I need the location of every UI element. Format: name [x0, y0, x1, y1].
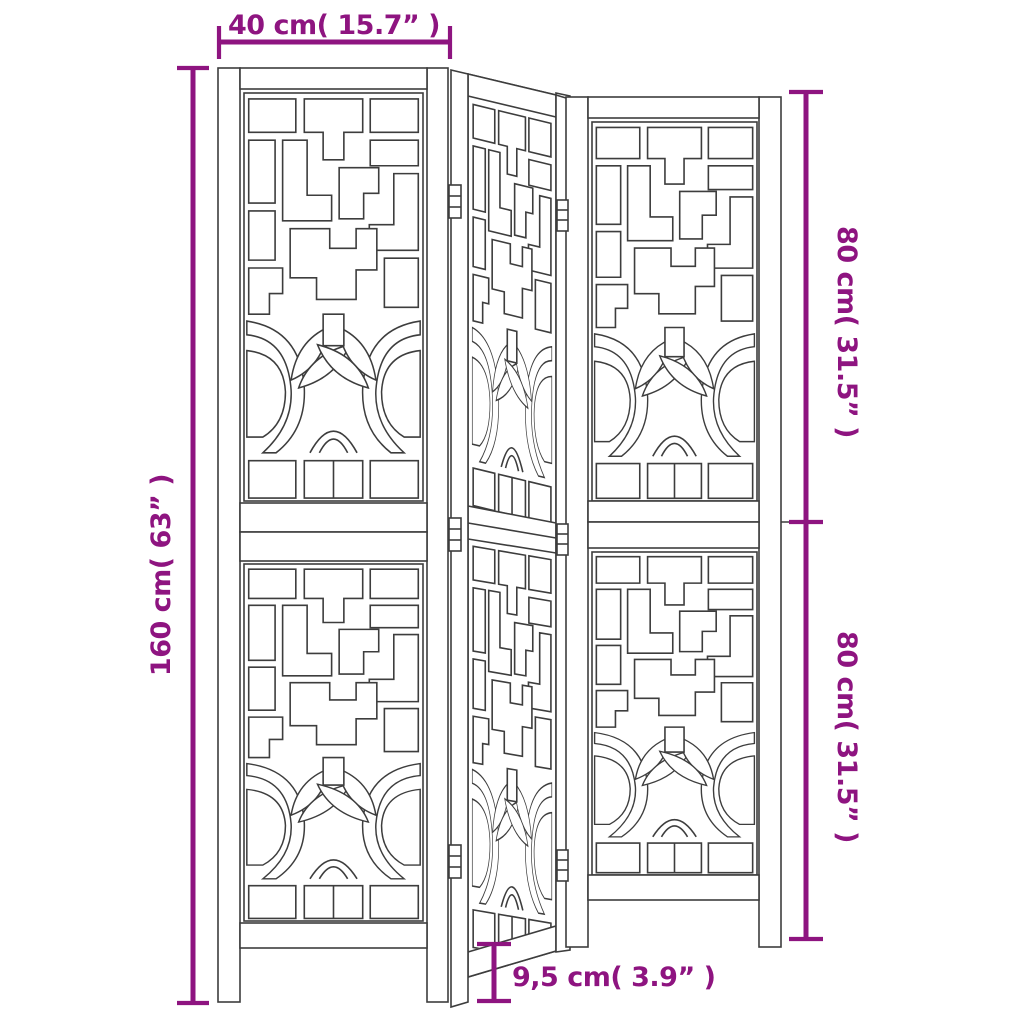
panel-3-top-rail [588, 97, 759, 118]
dimension-label-panel-width: 40 cm( 15.7” ) [228, 10, 440, 41]
panel-1-left-stile [218, 68, 240, 1002]
panel-3-mid-rail-upper [588, 501, 759, 522]
dimension-label-lower-section: 80 cm( 31.5” ) [831, 631, 862, 843]
hinge-icon [449, 845, 461, 878]
dimension-label-upper-section: 80 cm( 31.5” ) [831, 226, 862, 438]
panel-1 [218, 68, 448, 1002]
panel-1-upper-lattice [247, 99, 420, 498]
panel-1-lower-lattice [247, 569, 420, 918]
dimension-label-total-height: 160 cm( 63” ) [146, 474, 177, 676]
hinge-icon [557, 524, 568, 555]
panel-3 [556, 95, 781, 947]
panel-1-mid-rail-upper [240, 503, 427, 532]
dimension-panel-width: 40 cm( 15.7” ) [219, 10, 450, 59]
panel-1-top-rail [240, 68, 427, 89]
panel-3-mid-rail-lower [588, 522, 759, 548]
panel-1-right-stile [427, 68, 448, 1002]
dimension-label-ground-clearance: 9,5 cm( 3.9” ) [512, 962, 715, 993]
product-dimension-diagram: 40 cm( 15.7” ) 160 cm( 63” ) 80 cm( 31.5… [0, 0, 1024, 1024]
diagram-canvas: 40 cm( 15.7” ) 160 cm( 63” ) 80 cm( 31.5… [0, 0, 1024, 1024]
panel-3-bottom-rail [588, 875, 759, 900]
hinge-icon [449, 518, 461, 551]
panel-3-lower-lattice [595, 557, 755, 873]
panel-3-right-stile [759, 97, 781, 947]
panel-1-bottom-rail [240, 923, 427, 948]
hinge-icon [449, 185, 461, 218]
panel-3-upper-lattice [595, 127, 755, 498]
hinge-icon [557, 200, 568, 231]
dimension-total-height: 160 cm( 63” ) [146, 68, 209, 1003]
panel-1-mid-rail-lower [240, 532, 427, 561]
panel-3-left-stile [566, 97, 588, 947]
panel-2 [451, 70, 570, 1007]
hinge-icon [557, 850, 568, 881]
dimension-upper-section: 80 cm( 31.5” ) 80 cm( 31.5” ) [789, 92, 862, 939]
